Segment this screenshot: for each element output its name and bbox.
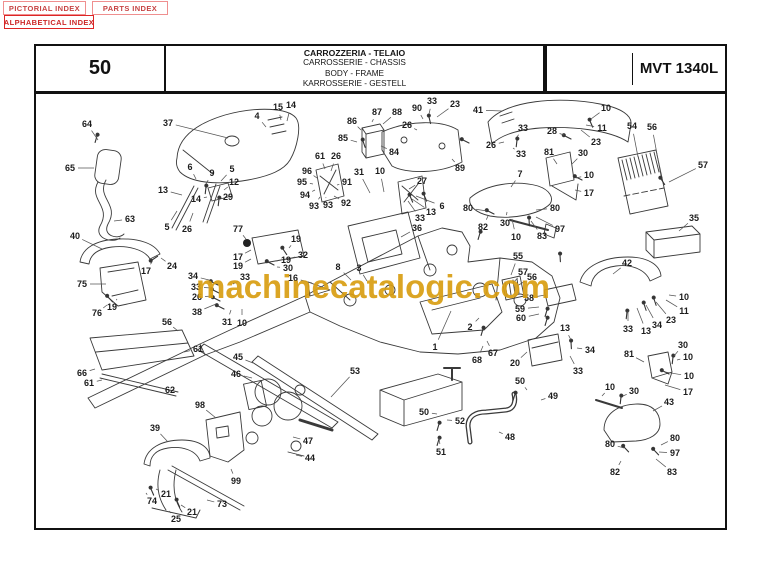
title-french: CARROSSERIE - CHASSIS — [303, 58, 406, 69]
page-number: 50 — [36, 46, 166, 91]
page-frame: 50 CARROZZERIA - TELAIO CARROSSERIE - CH… — [34, 44, 727, 530]
pictorial-index-button[interactable]: PICTORIAL INDEX — [3, 1, 86, 15]
catalog-page: PICTORIAL INDEX PARTS INDEX ALPHABETICAL… — [0, 0, 768, 588]
section-titles: CARROZZERIA - TELAIO CARROSSERIE - CHASS… — [166, 46, 543, 91]
model-cell: MVT 1340L — [543, 46, 725, 91]
alphabetical-index-button[interactable]: ALPHABETICAL INDEX — [4, 15, 94, 29]
title-italian: CARROZZERIA - TELAIO — [304, 48, 405, 59]
model-label: MVT 1340L — [632, 53, 725, 85]
page-header: 50 CARROZZERIA - TELAIO CARROSSERIE - CH… — [36, 46, 725, 94]
parts-index-button[interactable]: PARTS INDEX — [92, 1, 168, 15]
title-german: KARROSSERIE - GESTELL — [303, 79, 406, 90]
title-english: BODY - FRAME — [325, 69, 384, 80]
